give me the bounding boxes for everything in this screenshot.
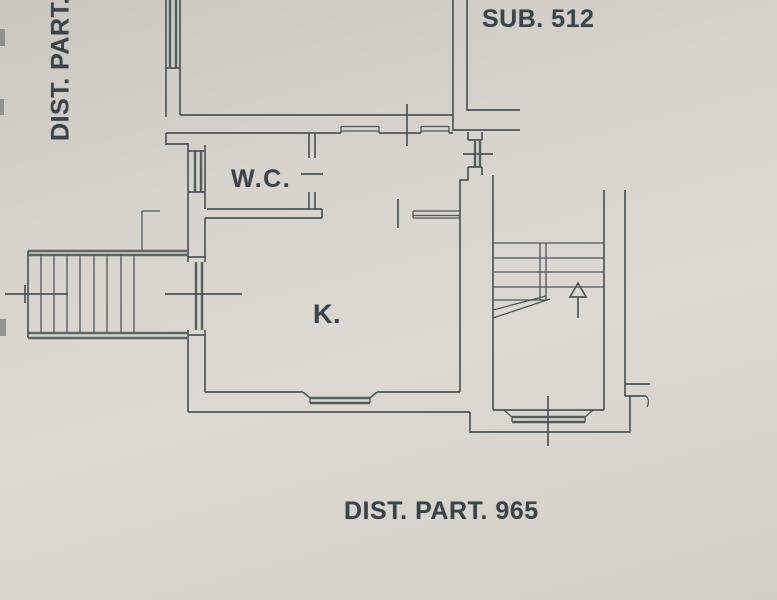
scanned-floor-plan-document: DIST. PART. SUB. 512 W.C. K. DIST. PART.… xyxy=(0,0,777,600)
kitchen-room-label: K. xyxy=(313,299,341,330)
district-parcel-label-bottom: DIST. PART. 965 xyxy=(344,497,539,526)
wc-room-label: W.C. xyxy=(231,165,291,194)
stairs-up-arrow-head xyxy=(570,283,586,297)
district-parcel-label-left: DIST. PART. xyxy=(47,0,76,141)
kitchen-room-walls xyxy=(5,257,470,412)
wc-window xyxy=(195,151,201,192)
upper-room-walls xyxy=(166,0,520,130)
hallway-kitchen-wall xyxy=(142,199,460,250)
entrance-door xyxy=(463,132,493,175)
internal-staircase xyxy=(470,190,650,446)
kitchen-window xyxy=(310,398,370,403)
upper-room-window xyxy=(170,0,176,68)
sub-unit-label: SUB. 512 xyxy=(482,5,594,34)
scan-edge-artifacts xyxy=(0,29,6,336)
kitchen-stairwell-wall xyxy=(460,175,493,410)
kitchen-balcony-door xyxy=(196,262,202,330)
